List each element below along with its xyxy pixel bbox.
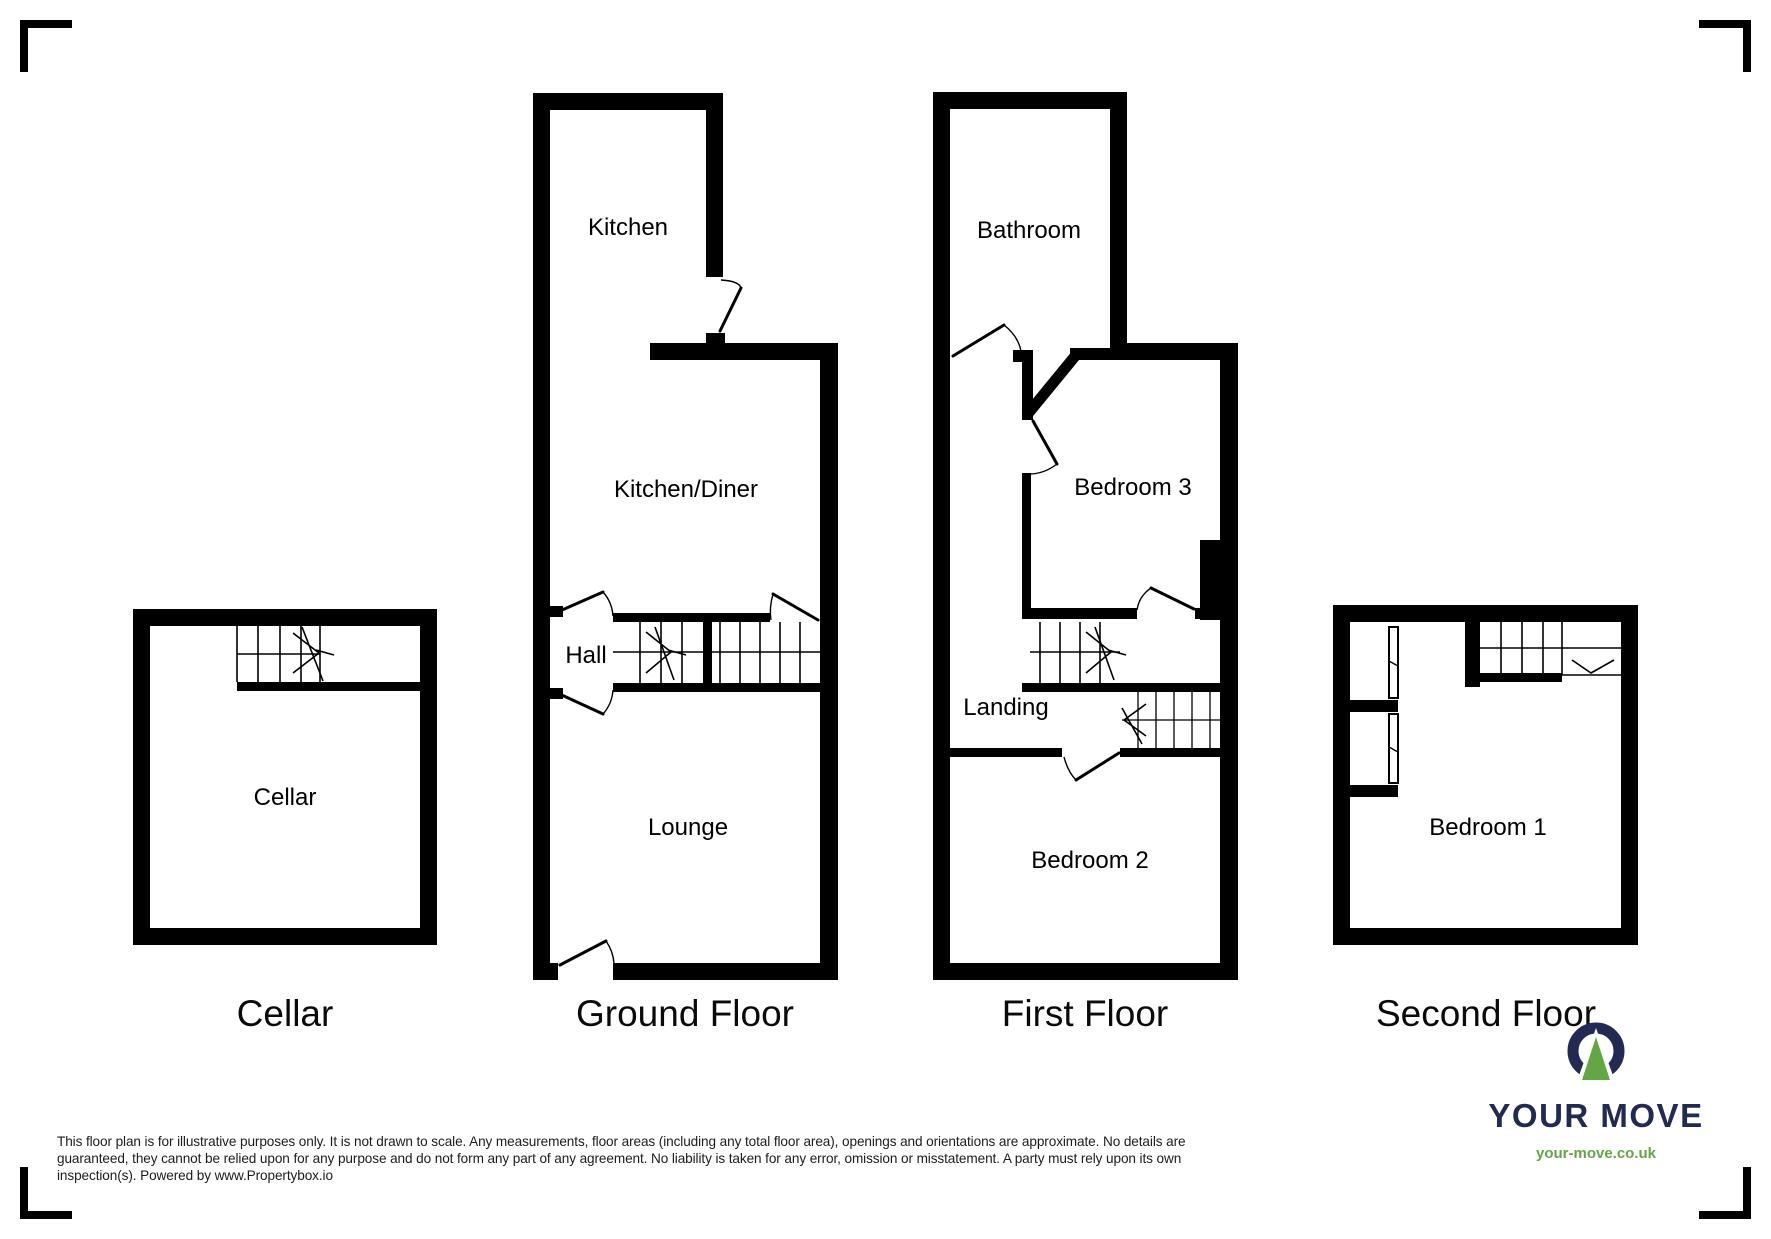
second-floor-walls: [1333, 605, 1638, 945]
stair-top-door-icon: [770, 594, 818, 620]
cellar-walls: [133, 609, 437, 945]
chimney-breast: [1200, 540, 1221, 620]
plan-ground-floor: Kitchen Kitchen/Diner Hall Lounge Ground…: [533, 93, 838, 1034]
room-label-kitchen: Kitchen: [588, 214, 668, 241]
room-label-hall: Hall: [565, 642, 606, 669]
floor-plan-page: Cellar Cellar: [0, 0, 1771, 1239]
logo-brand-text: YOUR MOVE: [1488, 1097, 1703, 1134]
bedroom3-rear-door-icon: [1137, 588, 1194, 610]
hall-door-lower-icon: [553, 690, 613, 714]
stair-direction-arrow-icon: [1122, 704, 1146, 744]
first-floor-stairs-icon: [1030, 622, 1126, 683]
plan-title-ground-floor: Ground Floor: [576, 993, 794, 1034]
front-door-icon: [560, 941, 614, 965]
ground-floor-walls: [533, 93, 838, 980]
plan-first-floor: Bathroom Bedroom 3 Landing Bedroom 2 Fir…: [933, 92, 1238, 1034]
stair-direction-arrow-icon: [1572, 660, 1614, 673]
room-label-cellar: Cellar: [254, 784, 317, 811]
plan-title-first-floor: First Floor: [1002, 993, 1169, 1034]
plan-title-second-floor: Second Floor: [1376, 993, 1596, 1034]
room-label-lounge: Lounge: [648, 814, 728, 841]
room-label-bedroom-3: Bedroom 3: [1074, 474, 1191, 501]
disclaimer-line-3: inspection(s). Powered by www.Propertybo…: [57, 1167, 1317, 1184]
plan-title-cellar: Cellar: [237, 993, 334, 1034]
corner-mark-top-left-icon: [20, 20, 72, 72]
kitchen-door-icon: [720, 280, 741, 331]
chamfer-wall: [1026, 355, 1076, 416]
floor-plan-drawing: Cellar Cellar: [0, 0, 1771, 1239]
disclaimer-line-2: guaranteed, they cannot be relied upon f…: [57, 1150, 1317, 1167]
plan-second-floor: Bedroom 1 Second Floor: [1333, 605, 1638, 1034]
room-label-bedroom-2: Bedroom 2: [1031, 847, 1148, 874]
stair-direction-arrow-icon: [1086, 627, 1126, 680]
bathroom-door-icon: [953, 325, 1021, 356]
corner-mark-bottom-right-icon: [1699, 1167, 1751, 1219]
closet-door-upper-icon: [1389, 627, 1398, 698]
ground-floor-doors: [553, 280, 818, 965]
disclaimer-text: This floor plan is for illustrative purp…: [57, 1133, 1317, 1185]
closet-door-lower-icon: [1389, 714, 1398, 783]
room-label-bathroom: Bathroom: [977, 217, 1081, 244]
corner-mark-top-right-icon: [1699, 20, 1751, 72]
plan-cellar: Cellar Cellar: [133, 609, 437, 1034]
your-move-logo: YOUR MOVE your-move.co.uk: [1488, 1028, 1703, 1162]
second-floor-stairs-icon: [1480, 622, 1621, 675]
room-label-landing: Landing: [963, 694, 1048, 721]
cellar-stairs-icon: [237, 626, 334, 682]
bedroom3-door-icon: [1029, 421, 1057, 474]
room-label-bedroom-1: Bedroom 1: [1429, 814, 1546, 841]
disclaimer-line-1: This floor plan is for illustrative purp…: [57, 1133, 1317, 1150]
logo-website-text: your-move.co.uk: [1536, 1145, 1657, 1162]
first-floor-upper-stairs-icon: [1122, 692, 1220, 748]
stair-direction-arrow-icon: [646, 627, 686, 680]
room-label-kitchen-diner: Kitchen/Diner: [614, 476, 758, 503]
bedroom2-door-icon: [1064, 753, 1119, 780]
ground-floor-stairs-icon: [613, 622, 820, 683]
